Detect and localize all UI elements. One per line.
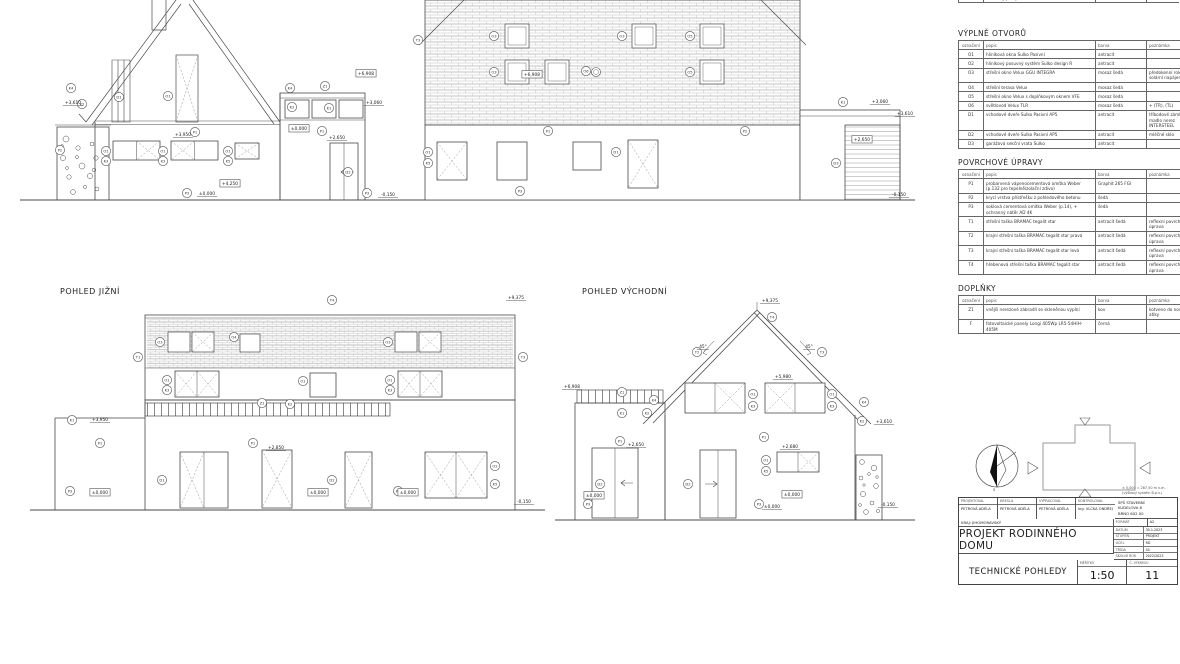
- marker-label: O1: [829, 392, 834, 396]
- table-row: K5hliníkový parapet Sulkoantracit: [959, 0, 1180, 3]
- marker-label: O6: [583, 69, 589, 73]
- cell: D1: [959, 110, 984, 130]
- scale-cell: MĚŘÍTKO 1:50: [1078, 560, 1128, 584]
- cell: šedá: [1096, 193, 1147, 202]
- table-row: O4střešní terasa Veluxmosaz šedá: [959, 83, 1180, 92]
- meta-label: DATUM: [1114, 527, 1144, 533]
- marker-label: O1: [763, 458, 768, 462]
- marker-label: T1: [135, 355, 141, 359]
- level-label: ±0,000: [199, 191, 215, 197]
- region-label: KRAJ: JIHOMORAVSKÝ: [959, 519, 1114, 527]
- marker-label: P3: [518, 189, 523, 193]
- marker-label: P3: [757, 502, 762, 506]
- table-row: O1hliníková okna Sulko Pasivníantracit: [959, 50, 1180, 59]
- marker-label: T3: [415, 38, 421, 42]
- column-header: označení: [959, 296, 984, 305]
- cell: černá: [1096, 319, 1147, 334]
- marker-label: K2: [860, 419, 865, 423]
- section-title-accessories: DOPLŇKY: [958, 284, 1179, 293]
- level-label: +9,375: [762, 298, 778, 304]
- upper-windows: [175, 371, 442, 397]
- cell: P2: [959, 193, 984, 202]
- level-label: ±0,000: [92, 490, 108, 496]
- cell: T3: [959, 246, 984, 261]
- level-label: -0,150: [892, 192, 906, 198]
- sun-tunnel: [592, 68, 601, 77]
- marker-label: O3: [157, 340, 163, 344]
- meta-label: STUPEŇ: [1114, 534, 1144, 540]
- sheet-number-value: 11: [1127, 567, 1177, 584]
- marker-label: D3: [833, 161, 839, 165]
- marker-label: O1: [160, 149, 165, 153]
- marker-label: O3: [619, 34, 625, 38]
- cell: antracit: [1096, 110, 1147, 130]
- cell: vchodové dveře Sulko Pasivní AP5: [984, 130, 1096, 139]
- north-arrow-compass: S: [976, 445, 1018, 492]
- role-value: Ing. VLČKA ONDŘEJ: [1076, 505, 1115, 512]
- cell: [1147, 83, 1180, 92]
- cell: kov: [1096, 305, 1147, 320]
- column-header: popis: [984, 170, 1096, 179]
- data-table: označenípopisbarvapoznámkaO1hliníková ok…: [958, 40, 1180, 149]
- cell: D2: [959, 130, 984, 139]
- cell: hliníková okna Sulko Pasivní: [984, 50, 1096, 59]
- marker-label: D1: [116, 95, 121, 99]
- marker-label: O3: [491, 34, 497, 38]
- sheet-number-label: Č. VÝKRESU: [1127, 560, 1177, 567]
- cell: střešní okno Velux GGU INTEGRA: [984, 68, 1096, 83]
- data-table: označenípopisbarvapoznámkaZ1vnější nerez…: [958, 295, 1180, 334]
- marker-label: O1: [387, 378, 392, 382]
- marker-label: K3: [751, 404, 756, 408]
- marker-label: K3: [165, 388, 170, 392]
- marker-label: T3: [520, 355, 526, 359]
- level-label: ±0,000: [764, 504, 780, 510]
- marker-label: O1: [164, 378, 169, 382]
- legend-panel: K5hliníkový parapet Sulkoantracit VÝPLNĚ…: [958, 0, 1179, 334]
- level-label: +6,908: [564, 384, 580, 390]
- cell: šedá: [1096, 202, 1147, 217]
- east-view-title: POHLED VÝCHODNÍ: [582, 287, 667, 296]
- east-elevation-drawing: [555, 302, 915, 520]
- marker-label: Z1: [260, 401, 265, 405]
- cell: O3: [959, 68, 984, 83]
- format-label: FORMÁT: [1114, 519, 1148, 527]
- column-header: poznámka: [1147, 296, 1180, 305]
- cell: Z1: [959, 305, 984, 320]
- cell: [1147, 179, 1180, 194]
- windows: [113, 141, 259, 160]
- table-row: D3garážová sekční vrata Sulkoantracit: [959, 139, 1180, 148]
- upper-glazing: [112, 55, 198, 122]
- section-title-surfaces: POVRCHOVÉ ÚPRAVY: [958, 158, 1179, 167]
- meta-label: ÚČEL: [1114, 540, 1144, 546]
- table-row: P2krycí vrstva přístřešku z pohledového …: [959, 193, 1180, 202]
- marker-label: O1: [165, 94, 170, 98]
- cell: střešní taška BRAMAC tegalit star: [984, 217, 1096, 232]
- table-row: D1vchodové dveře Sulko Pasivní AP5antrac…: [959, 110, 1180, 130]
- cell: antracit šedá: [1096, 217, 1147, 232]
- marker-label: P1: [618, 439, 623, 443]
- cell: D3: [959, 139, 984, 148]
- cell: [1147, 319, 1180, 334]
- level-label: +6,908: [524, 72, 540, 78]
- column-header: označení: [959, 41, 984, 50]
- project-title: PROJEKT RODINNÉHO DOMU: [959, 527, 1114, 554]
- table-row: Ffotovoltaické panely Longi 405Wp LR5-54…: [959, 319, 1180, 334]
- level-label: ±0,000: [586, 493, 602, 499]
- header-row: označenípopisbarvapoznámka: [959, 296, 1180, 305]
- format-value: A2: [1148, 519, 1177, 527]
- cell: O4: [959, 83, 984, 92]
- cell: mosaz šedá: [1096, 92, 1147, 101]
- cell: [1147, 193, 1180, 202]
- marker-label: O1: [750, 392, 755, 396]
- marker-label: P3: [586, 502, 591, 506]
- marker-label: O2: [492, 464, 497, 468]
- marker-label: K4: [288, 86, 293, 90]
- role-value: PETROVÁ ADÉLA: [959, 505, 997, 512]
- table-row: O6světlovod Velux TLRmosaz šedá+ (TR), (…: [959, 101, 1180, 110]
- cell: reflexní povrchová úprava: [1147, 246, 1180, 261]
- table-row: P3soklová cementová omítka Weber (p.14),…: [959, 202, 1180, 217]
- west-level-labels: +3,610+3,950+4,250±0,000+6,908+3,060+2,6…: [63, 70, 398, 198]
- cell: předokenní roleta, solární napájení: [1147, 68, 1180, 83]
- title-block-meta: DATUM30.1.2023 STUPEŇPROJEKT ÚČELRD TŘÍD…: [1114, 527, 1177, 560]
- cell: P1: [959, 179, 984, 194]
- marker-label: D2: [345, 170, 350, 174]
- marker-label: D2: [685, 482, 690, 486]
- marker-label: O5: [687, 70, 693, 74]
- marker-label: T2: [694, 350, 700, 354]
- marker-label: P1: [320, 129, 325, 133]
- table-row: P1probarvená vápenocementová omítka Webe…: [959, 179, 1180, 194]
- level-label: 45°: [699, 344, 707, 350]
- cell: antracit šedá: [1096, 231, 1147, 246]
- cell: reflexní povrchová úprava: [1147, 260, 1180, 275]
- cell: krajní střešní taška BRAMAC tegalit star…: [984, 246, 1096, 261]
- cell: P3: [959, 202, 984, 217]
- table-row: T4hřebenová střešní taška BRAMAC tegalit…: [959, 260, 1180, 275]
- format-row: FORMÁT A2: [1114, 519, 1177, 527]
- column-header: poznámka: [1147, 170, 1180, 179]
- cell: mosaz šedá: [1096, 83, 1147, 92]
- cell: světlovod Velux TLR: [984, 101, 1096, 110]
- header-row: označenípopisbarvapoznámka: [959, 170, 1180, 179]
- marker-label: O1: [300, 379, 305, 383]
- cell: T1: [959, 217, 984, 232]
- table-row: T3krajní střešní taška BRAMAC tegalit st…: [959, 246, 1180, 261]
- marker-label: K1: [327, 106, 332, 110]
- level-label: +3,950: [92, 417, 108, 423]
- table-row: T2krajní střešní taška BRAMAC tegalit st…: [959, 231, 1180, 246]
- cell: antracit: [1096, 130, 1147, 139]
- level-label: 45°: [805, 344, 813, 350]
- cell: [1147, 0, 1180, 3]
- scale-value: 1:50: [1078, 567, 1127, 584]
- section-title-openings: VÝPLNĚ OTVORŮ: [958, 29, 1179, 38]
- roof-edge: [79, 0, 280, 125]
- meta-label: TŘÍDA: [1114, 547, 1144, 553]
- marker-label: P3: [365, 191, 370, 195]
- marker-label: K5: [764, 469, 769, 473]
- marker-label: O1: [425, 150, 430, 154]
- marker-label: D1: [159, 478, 164, 482]
- south-view-title: POHLED JIŽNÍ: [60, 287, 120, 296]
- table-row: O2hliníkový posuvný systém Sulko design …: [959, 59, 1180, 68]
- cell: O5: [959, 92, 984, 101]
- marker-label: O1: [103, 149, 108, 153]
- role-value: PETROVÁ ADÉLA: [1037, 505, 1075, 512]
- role-label: PROJEKTOVAL: [959, 498, 997, 505]
- cell: antracit: [1096, 50, 1147, 59]
- level-label: +9,375: [508, 295, 524, 301]
- table-row: O5střešní okno Velux s doplňkovým oknem …: [959, 92, 1180, 101]
- level-label: +2,850: [268, 445, 284, 451]
- marker-label: O4: [231, 335, 237, 339]
- door-swing-arrow: [705, 481, 717, 487]
- level-label: ±0,000: [310, 490, 326, 496]
- cell: + (TR), (TL): [1147, 101, 1180, 110]
- role-value: PETROVÁ ADÉLA: [998, 505, 1036, 512]
- stone-pillar: [856, 455, 882, 520]
- cell: vnější nerezové zábradlí se skleněnou vý…: [984, 305, 1096, 320]
- cell: O2: [959, 59, 984, 68]
- level-label: -0,150: [517, 499, 531, 505]
- marker-label: K4: [862, 400, 867, 404]
- role-label: VYPRACOVAL: [1037, 498, 1075, 505]
- cell: [1147, 59, 1180, 68]
- marker-label: P1: [98, 441, 103, 445]
- column-header: popis: [984, 296, 1096, 305]
- meta-value: 2022/2023: [1144, 553, 1177, 559]
- table-row: Z1vnější nerezové zábradlí se skleněnou …: [959, 305, 1180, 320]
- column-header: barva: [1096, 41, 1147, 50]
- level-label: ±0,000: [784, 492, 800, 498]
- cell: fotovoltaické panely Longi 405Wp LR5-54H…: [984, 319, 1096, 334]
- cell: mosaz šedá: [1096, 68, 1147, 83]
- marker-label: K3: [161, 159, 166, 163]
- marker-label: P1: [251, 441, 256, 445]
- marker-label: O1: [225, 149, 230, 153]
- column-header: barva: [1096, 170, 1147, 179]
- meta-value: PROJEKT: [1144, 534, 1177, 540]
- cell: garážová sekční vrata Sulko: [984, 139, 1096, 148]
- cell: [1147, 202, 1180, 217]
- cell: mosaz šedá: [1096, 101, 1147, 110]
- header-row: označenípopisbarvapoznámka: [959, 41, 1180, 50]
- table-row: O3střešní okno Velux GGU INTEGRAmosaz še…: [959, 68, 1180, 83]
- cell: mléčné sklo: [1147, 130, 1180, 139]
- level-label: +3,060: [872, 99, 888, 105]
- cell: vchodové dveře Sulko Pasivní AP5: [984, 110, 1096, 130]
- column-header: poznámka: [1147, 41, 1180, 50]
- cell: hliníkový parapet Sulko: [984, 0, 1096, 3]
- marker-label: K5: [493, 482, 498, 486]
- marker-label: K2: [645, 411, 650, 415]
- drawing-sheet: K4K2P2D1O1O1K3O1K3O1K5P1P3K4Z1K2K1P1D2P3…: [0, 0, 1180, 664]
- cell: soklová cementová omítka Weber (p.14), +…: [984, 202, 1096, 217]
- terrace-railing: [145, 403, 390, 416]
- scale-label: MĚŘÍTKO: [1078, 560, 1127, 567]
- sheet-title: TECHNICKÉ POHLEDY: [959, 560, 1078, 584]
- cell: probarvená vápenocementová omítka Weber …: [984, 179, 1096, 194]
- marker-label: K1: [841, 100, 846, 104]
- marker-label: P1: [762, 435, 767, 439]
- marker-label: D2: [329, 478, 334, 482]
- brick-gable-wall: [425, 0, 800, 125]
- cell: reflexní povrchová úprava: [1147, 231, 1180, 246]
- role-label: KONTROLOVAL: [1076, 498, 1115, 505]
- marker-label: Z1: [323, 84, 328, 88]
- marker-label: P3: [185, 191, 190, 195]
- cell: antracit šedá: [1096, 260, 1147, 275]
- door-swing-arrow: [621, 480, 633, 486]
- marker-label: K3: [388, 388, 393, 392]
- school-address: SPŠ STAVEBNÍ KUDELOVA 8 BRNO 602 00: [1115, 498, 1177, 519]
- level-label: +4,250: [222, 181, 238, 187]
- cell: střešní terasa Velux: [984, 83, 1096, 92]
- cell: K5: [959, 0, 984, 3]
- accessories: označenípopisbarvapoznámkaZ1vnější nerez…: [958, 295, 1179, 334]
- cell: tříbodové zámky, madlo nerez INTERSTEEL: [1147, 110, 1180, 130]
- marker-label: P1: [193, 130, 198, 134]
- marker-label: O5: [687, 34, 693, 38]
- level-label: +3,610: [876, 419, 892, 425]
- cell: reflexní povrchová úprava: [1147, 217, 1180, 232]
- level-label: +2,680: [782, 444, 798, 450]
- sheet-number-cell: Č. VÝKRESU 11: [1127, 560, 1177, 584]
- level-label: +3,950: [175, 132, 191, 138]
- marker-label: O3: [385, 340, 391, 344]
- table-row: D2vchodové dveře Sulko Pasivní AP5antrac…: [959, 130, 1180, 139]
- marker-label: K3: [104, 159, 109, 163]
- cell: krycí vrstva přístřešku z pohledového be…: [984, 193, 1096, 202]
- level-label: +3,060: [366, 100, 382, 106]
- marker-label: K2: [290, 105, 295, 109]
- level-label: ±0,000: [400, 490, 416, 496]
- marker-label: T4: [329, 298, 335, 302]
- cell: antracit: [1096, 139, 1147, 148]
- cell: [1147, 50, 1180, 59]
- cropped-table: K5hliníkový parapet Sulkoantracit: [958, 0, 1179, 20]
- cell: hliníkový posuvný systém Sulko design R: [984, 59, 1096, 68]
- marker-label: K4: [69, 86, 74, 90]
- cell: hřebenová střešní taška BRAMAC tegalit s…: [984, 260, 1096, 275]
- level-label: +2,650: [854, 137, 870, 143]
- level-label: +6,908: [358, 71, 374, 77]
- column-header: popis: [984, 41, 1096, 50]
- cell: střešní okno Velux s doplňkovým oknem VF…: [984, 92, 1096, 101]
- marker-label: P3: [68, 489, 73, 493]
- level-label: -0,150: [881, 502, 895, 508]
- level-label: ±0,000: [291, 126, 307, 132]
- table-row: T1střešní taška BRAMAC tegalit starantra…: [959, 217, 1180, 232]
- marker-label: T3: [819, 350, 825, 354]
- key-plan: ± 0,000 = 287,50 m n.m. (výškový systém …: [1028, 418, 1166, 497]
- level-label: +5,980: [775, 374, 791, 380]
- marker-label: K1: [620, 411, 625, 415]
- marker-label: P2: [743, 129, 748, 133]
- title-block: PROJEKTOVALPETROVÁ ADÉLA KRESLILPETROVÁ …: [958, 497, 1178, 585]
- partial-table: K5hliníkový parapet Sulkoantracit: [958, 0, 1179, 3]
- level-label: +3,610: [65, 100, 81, 106]
- cell: T2: [959, 231, 984, 246]
- marker-label: K4: [652, 398, 657, 402]
- marker-label: K5: [226, 159, 231, 163]
- column-header: označení: [959, 170, 984, 179]
- meta-value: RD: [1144, 540, 1177, 546]
- cell: T4: [959, 260, 984, 275]
- datum-note-line1: ± 0,000 = 287,50 m n.m.: [1122, 486, 1166, 490]
- marker-label: O3: [491, 70, 497, 74]
- marker-label: D1: [613, 150, 618, 154]
- meta-label: ŠKOLNÍ ROK: [1114, 553, 1144, 559]
- marker-label: T4: [769, 315, 775, 319]
- marker-label: K3: [830, 404, 835, 408]
- cell: [1147, 92, 1180, 101]
- cell: F: [959, 319, 984, 334]
- data-table: označenípopisbarvapoznámkaP1probarvená v…: [958, 169, 1180, 275]
- cell: antracit: [1096, 0, 1147, 3]
- garage-annex: [800, 110, 900, 200]
- cell: antracit šedá: [1096, 246, 1147, 261]
- level-label: +2,650: [329, 135, 345, 141]
- cell: krajní střešní taška BRAMAC tegalit star…: [984, 231, 1096, 246]
- openings: označenípopisbarvapoznámkaO1hliníková ok…: [958, 40, 1179, 149]
- level-label: +3,610: [897, 111, 913, 117]
- cell: kotveno do nosné atiky: [1147, 305, 1180, 320]
- cell: [1147, 139, 1180, 148]
- south-elevation-drawing: [30, 315, 545, 510]
- marker-label: P2: [58, 148, 63, 152]
- marker-label: D2: [597, 482, 602, 486]
- compass-south-letter: S: [993, 488, 996, 492]
- meta-value: S4: [1144, 547, 1177, 553]
- cell: O6: [959, 101, 984, 110]
- cell: O1: [959, 50, 984, 59]
- doors-and-windows: [592, 448, 819, 518]
- meta-value: 30.1.2023: [1144, 527, 1177, 533]
- column-header: barva: [1096, 296, 1147, 305]
- marker-label: K5: [426, 161, 431, 165]
- cell: antracit: [1096, 59, 1147, 68]
- marker-label: K1: [70, 418, 75, 422]
- title-block-people: PROJEKTOVALPETROVÁ ADÉLA KRESLILPETROVÁ …: [959, 498, 1115, 519]
- marker-label: K2: [288, 402, 293, 406]
- datum-note-line2: (výškový systém B.p.v.): [1122, 491, 1163, 495]
- cell: Graphit 265 FGI: [1096, 179, 1147, 194]
- level-label: -0,150: [381, 192, 395, 198]
- data-table: K5hliníkový parapet Sulkoantracit: [958, 0, 1179, 3]
- level-label: +2,650: [628, 442, 644, 448]
- marker-label: P1: [546, 129, 551, 133]
- surfaces: označenípopisbarvapoznámkaP1probarvená v…: [958, 169, 1179, 275]
- marker-label: Z1: [620, 390, 625, 394]
- role-label: KRESLIL: [998, 498, 1036, 505]
